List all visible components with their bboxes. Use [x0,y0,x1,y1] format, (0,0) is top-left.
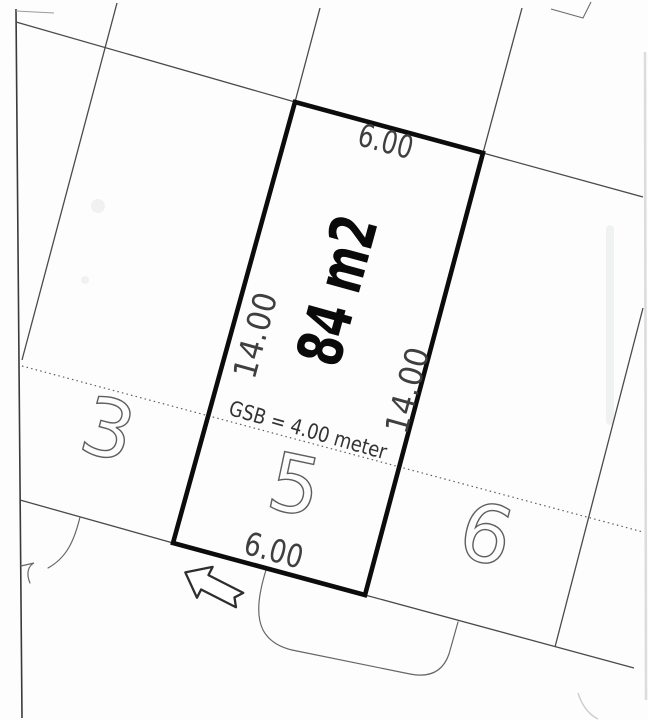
adjacent-plot-left-number: 3 [71,378,144,481]
plot-number: 5 [260,434,329,536]
site-plan-drawing: 6.00 6.00 14.00 14.00 84 m2 GSB = 4.00 m… [0,0,648,720]
scan-edge-curve [578,693,598,719]
depth-right-label: 14.00 [377,343,437,438]
scanned-site-plan-page: 6.00 6.00 14.00 14.00 84 m2 GSB = 4.00 m… [0,0,648,720]
plot-area-label: 84 m2 [282,207,393,373]
entrance-arrow-icon [177,557,247,615]
scan-smudge [81,276,89,284]
width-top-label: 6.00 [354,116,418,167]
adjacent-plot-right-number: 6 [449,483,522,586]
scan-smudge [91,199,105,213]
depth-left-label: 14.00 [225,288,285,383]
cutoff-glyph-mark [551,2,591,18]
scan-streak [606,225,614,425]
